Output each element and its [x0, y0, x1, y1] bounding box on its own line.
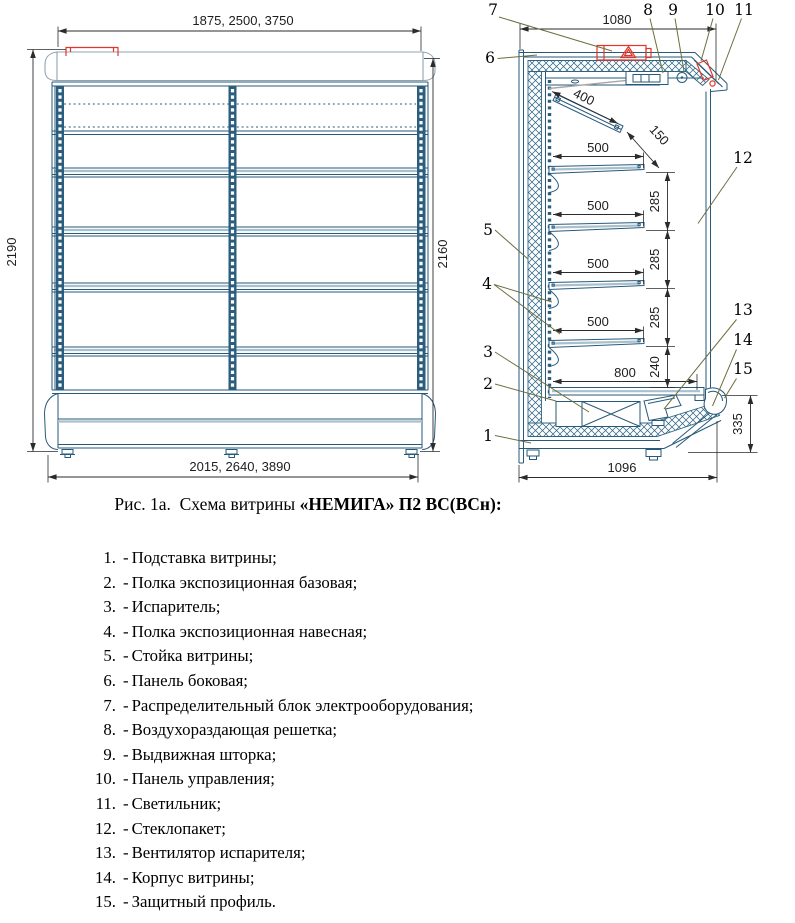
dim-base-shelf-depth: 800: [614, 365, 636, 380]
legend-item-dash: -: [116, 890, 132, 915]
callout-13: 13: [733, 301, 753, 319]
callout-12: 12: [733, 149, 753, 167]
dim-width-top: 1875, 2500, 3750: [192, 13, 293, 28]
legend-item: 12.-Стеклопакет;: [84, 817, 473, 842]
legend-item: 5.-Стойка витрины;: [84, 644, 473, 669]
legend-item-dash: -: [116, 792, 132, 817]
parts-legend: 1.-Подставка витрины; 2.-Полка экспозици…: [84, 546, 473, 915]
legend-item-number: 9.: [84, 743, 116, 768]
protective-profile: [704, 388, 726, 414]
legend-item-number: 6.: [84, 669, 116, 694]
dim-front-height: 335: [730, 413, 745, 435]
legend-item: 13.-Вентилятор испарителя;: [84, 841, 473, 866]
callout-11: 11: [734, 1, 754, 19]
legend-item-name: Воздухораздающая решетка;: [132, 718, 338, 743]
figure-caption-text: Рис. 1а. Схема витрины: [114, 494, 299, 514]
foot: [224, 450, 239, 458]
shelf-post-right: [417, 86, 425, 390]
dim-width-bottom: 2015, 2640, 3890: [189, 459, 290, 474]
glass-pack: [706, 89, 711, 391]
legend-item-dash: -: [116, 866, 132, 891]
legend-item-number: 4.: [84, 620, 116, 645]
callout-3: 3: [483, 343, 493, 361]
legend-item-dash: -: [116, 718, 132, 743]
legend-item: 4.-Полка экспозиционная навесная;: [84, 620, 473, 645]
legend-item-dash: -: [116, 841, 132, 866]
legend-item-dash: -: [116, 644, 132, 669]
dim-shelf-pitch: 285: [647, 191, 662, 213]
shelf-post-left: [56, 86, 64, 390]
legend-item-name: Полка экспозиционная базовая;: [132, 571, 358, 596]
legend-item: 11.-Светильник;: [84, 792, 473, 817]
legend-item-number: 11.: [84, 792, 116, 817]
dim-shelf-depth: 500: [587, 256, 609, 271]
shelf-post-center: [229, 86, 237, 390]
legend-item-dash: -: [116, 743, 132, 768]
foot: [404, 450, 419, 458]
legend-item: 10.-Панель управления;: [84, 767, 473, 792]
callout-5: 5: [483, 221, 493, 239]
dim-height-left: 2190: [4, 238, 19, 267]
legend-item-name: Испаритель;: [132, 595, 221, 620]
legend-item-dash: -: [116, 694, 132, 719]
callout-4: 4: [482, 275, 492, 293]
legend-item-number: 14.: [84, 866, 116, 891]
callout-6: 6: [485, 49, 495, 67]
hanging-shelf: [549, 223, 644, 251]
base-shelf: [549, 388, 704, 401]
legend-item-number: 2.: [84, 571, 116, 596]
legend-item-name: Корпус витрины;: [132, 866, 255, 891]
legend-item-name: Светильник;: [132, 792, 222, 817]
legend-item-number: 8.: [84, 718, 116, 743]
legend-item: 8.-Воздухораздающая решетка;: [84, 718, 473, 743]
legend-item-number: 13.: [84, 841, 116, 866]
front-shelf-lines: [52, 104, 428, 356]
legend-item-name: Выдвижная шторка;: [132, 743, 277, 768]
evaporator: [556, 402, 640, 427]
base-front: [45, 390, 436, 458]
dim-shelf-depth: 500: [587, 314, 609, 329]
legend-item-dash: -: [116, 767, 132, 792]
callout-10: 10: [705, 1, 725, 19]
callout-9: 9: [668, 1, 678, 19]
schematic-drawing: 1875, 2500, 3750 2190 2160 2015, 2640, 3…: [0, 0, 795, 490]
legend-item: 1.-Подставка витрины;: [84, 546, 473, 571]
legend-item-number: 12.: [84, 817, 116, 842]
legend-item: 6.-Панель боковая;: [84, 669, 473, 694]
callout-8: 8: [643, 1, 653, 19]
legend-item-dash: -: [116, 571, 132, 596]
dim-shelf-pitch: 285: [647, 307, 662, 329]
foot: [60, 450, 75, 458]
legend-item-dash: -: [116, 817, 132, 842]
dim-bottom-gap: 240: [647, 356, 662, 378]
front-dimensions: 1875, 2500, 3750 2190 2160 2015, 2640, 3…: [4, 13, 450, 483]
legend-item-number: 10.: [84, 767, 116, 792]
hanging-shelf: [549, 165, 644, 193]
hanging-shelf: [549, 281, 644, 309]
legend-item-dash: -: [116, 595, 132, 620]
legend-item: 9.-Выдвижная шторка;: [84, 743, 473, 768]
legend-item-dash: -: [116, 546, 132, 571]
side-panel: [519, 50, 524, 463]
legend-item-name: Стойка витрины;: [132, 644, 254, 669]
callout-2: 2: [483, 375, 493, 393]
figure-caption: Рис. 1а. Схема витрины «НЕМИГА» П2 ВС(ВС…: [114, 494, 501, 515]
legend-item-number: 5.: [84, 644, 116, 669]
legend-item: 7.-Распределительный блок электрооборудо…: [84, 694, 473, 719]
dim-height-right: 2160: [435, 240, 450, 269]
callout-7: 7: [488, 1, 498, 19]
legend-item-number: 3.: [84, 595, 116, 620]
legend-item-number: 15.: [84, 890, 116, 915]
callout-1: 1: [483, 427, 493, 445]
legend-item-name: Панель управления;: [132, 767, 275, 792]
dim-shelf-depth: 500: [587, 140, 609, 155]
legend-item: 2.-Полка экспозиционная базовая;: [84, 571, 473, 596]
legend-item-name: Подставка витрины;: [132, 546, 277, 571]
legend-item-name: Вентилятор испарителя;: [132, 841, 306, 866]
legend-item: 3.-Испаритель;: [84, 595, 473, 620]
legend-item-name: Стеклопакет;: [132, 817, 226, 842]
canopy: [45, 52, 435, 81]
figure-caption-model: «НЕМИГА» П2 ВС(ВСн):: [300, 494, 502, 514]
callout-14: 14: [733, 331, 753, 349]
legend-item-name: Распределительный блок электрооборудован…: [132, 694, 474, 719]
callout-15: 15: [733, 360, 753, 378]
dim-depth-top: 1080: [603, 12, 632, 27]
dim-shelf-pitch: 285: [647, 249, 662, 271]
legend-item-dash: -: [116, 620, 132, 645]
dim-depth-bottom: 1096: [608, 460, 637, 475]
dim-shelf-depth: 500: [587, 198, 609, 213]
insulation-back: [528, 72, 542, 424]
legend-item-name: Панель боковая;: [132, 669, 248, 694]
legend-item-number: 7.: [84, 694, 116, 719]
legend-item: 15.-Защитный профиль.: [84, 890, 473, 915]
legend-item-name: Защитный профиль.: [132, 890, 276, 915]
document-page: 1875, 2500, 3750 2190 2160 2015, 2640, 3…: [0, 0, 795, 923]
side-view: 1080 400 150 500 500 500 500: [482, 1, 757, 483]
legend-item-number: 1.: [84, 546, 116, 571]
hanging-shelf: [549, 339, 644, 367]
air-grille: [626, 72, 668, 85]
dim-light-gap: 150: [647, 122, 673, 148]
legend-item-dash: -: [116, 669, 132, 694]
legend-item-name: Полка экспозиционная навесная;: [132, 620, 368, 645]
front-view: 1875, 2500, 3750 2190 2160 2015, 2640, 3…: [4, 13, 450, 483]
legend-item: 14.-Корпус витрины;: [84, 866, 473, 891]
